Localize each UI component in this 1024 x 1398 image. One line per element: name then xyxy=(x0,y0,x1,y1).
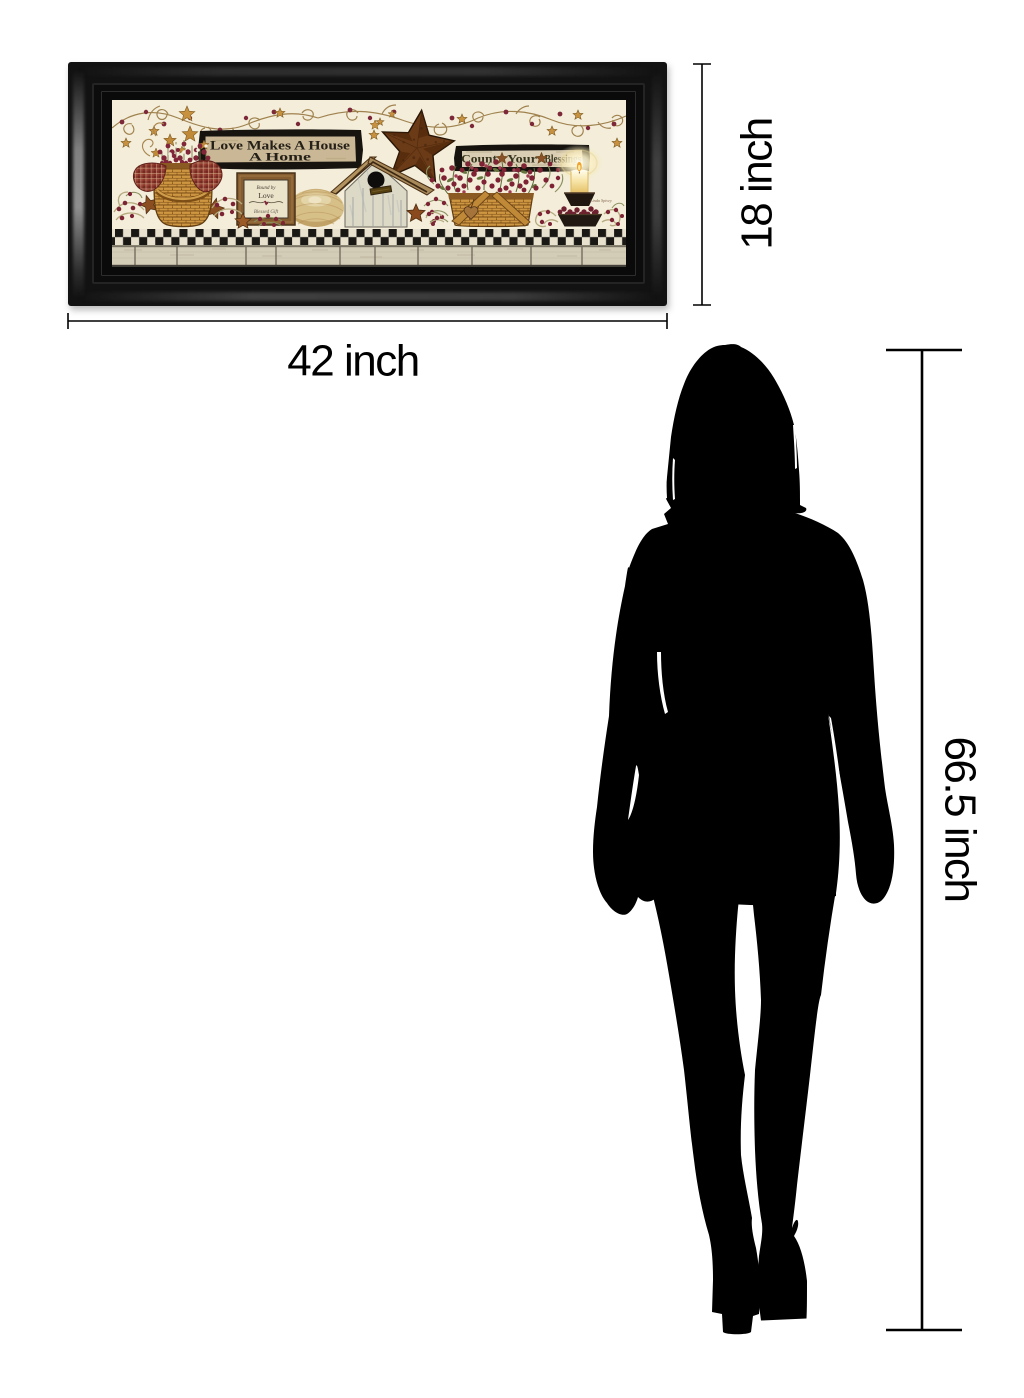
svg-text:66.5 inch: 66.5 inch xyxy=(936,736,985,901)
svg-text:42 inch: 42 inch xyxy=(287,337,418,386)
svg-text:18 inch: 18 inch xyxy=(733,118,782,249)
